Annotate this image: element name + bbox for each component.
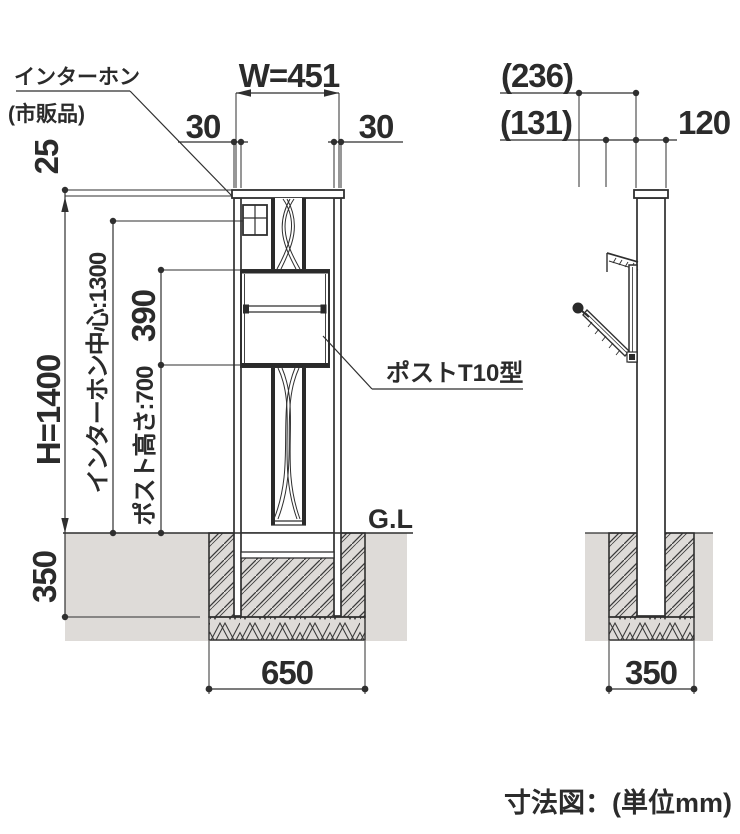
gravel-layer [209,617,365,640]
dim-flap-depth: (236) [501,57,573,94]
dim-foundation-width-side: 350 [625,654,677,691]
dim-door-depth: (131) [500,104,572,141]
dimension-drawing: W=451 30 30 25 H=1400 インターホン中心:1300 390 … [0,0,740,834]
right-post [334,198,341,616]
front-view [232,190,344,616]
intercom-box [243,205,267,235]
post-model-leader [323,336,372,389]
post-box [241,270,329,367]
concrete-hatch [241,558,334,617]
concrete-hatch [209,533,234,617]
dim-post-mount-height: ポスト高さ:700 [131,366,159,526]
dim-foundation-width-front: 650 [261,654,313,691]
texts: W=451 30 30 25 H=1400 インターホン中心:1300 390 … [8,57,732,818]
decor-panel-lower [271,367,306,525]
top-cap-side [634,190,668,198]
top-cap [232,190,344,198]
concrete-hatch [341,533,365,617]
dim-post-width-left: 30 [186,108,221,145]
dim-intercom-center: インターホン中心:1300 [85,252,112,493]
drawing-caption: 寸法図：(単位mm) [504,787,732,818]
post-model-callout: ポストT10型 [386,359,523,387]
concrete-hatch [665,533,694,617]
dim-embed-depth: 350 [26,551,63,603]
flap-arm [607,253,638,262]
ground-line-label: G.L [368,504,413,534]
decor-panel-upper [271,198,306,270]
intercom-callout-line1: インターホン [14,66,140,89]
post-side [637,198,665,616]
dim-post-width-right: 30 [359,108,394,145]
concrete-hatch [609,533,637,617]
dimension-drawing-page: W=451 30 30 25 H=1400 インターホン中心:1300 390 … [0,0,740,834]
dim-post-depth: 120 [678,104,730,141]
post-bracket-side [573,253,639,362]
dim-box-height: 390 [125,290,162,342]
gravel-layer [609,617,694,640]
dim-cap-height: 25 [28,139,65,174]
intercom-callout-line2: (市販品) [8,102,85,126]
bottom-rail [241,552,334,558]
dim-total-height: H=1400 [30,355,67,466]
dim-width: W=451 [239,57,340,94]
left-post [234,198,241,616]
mount-plate [629,265,637,362]
